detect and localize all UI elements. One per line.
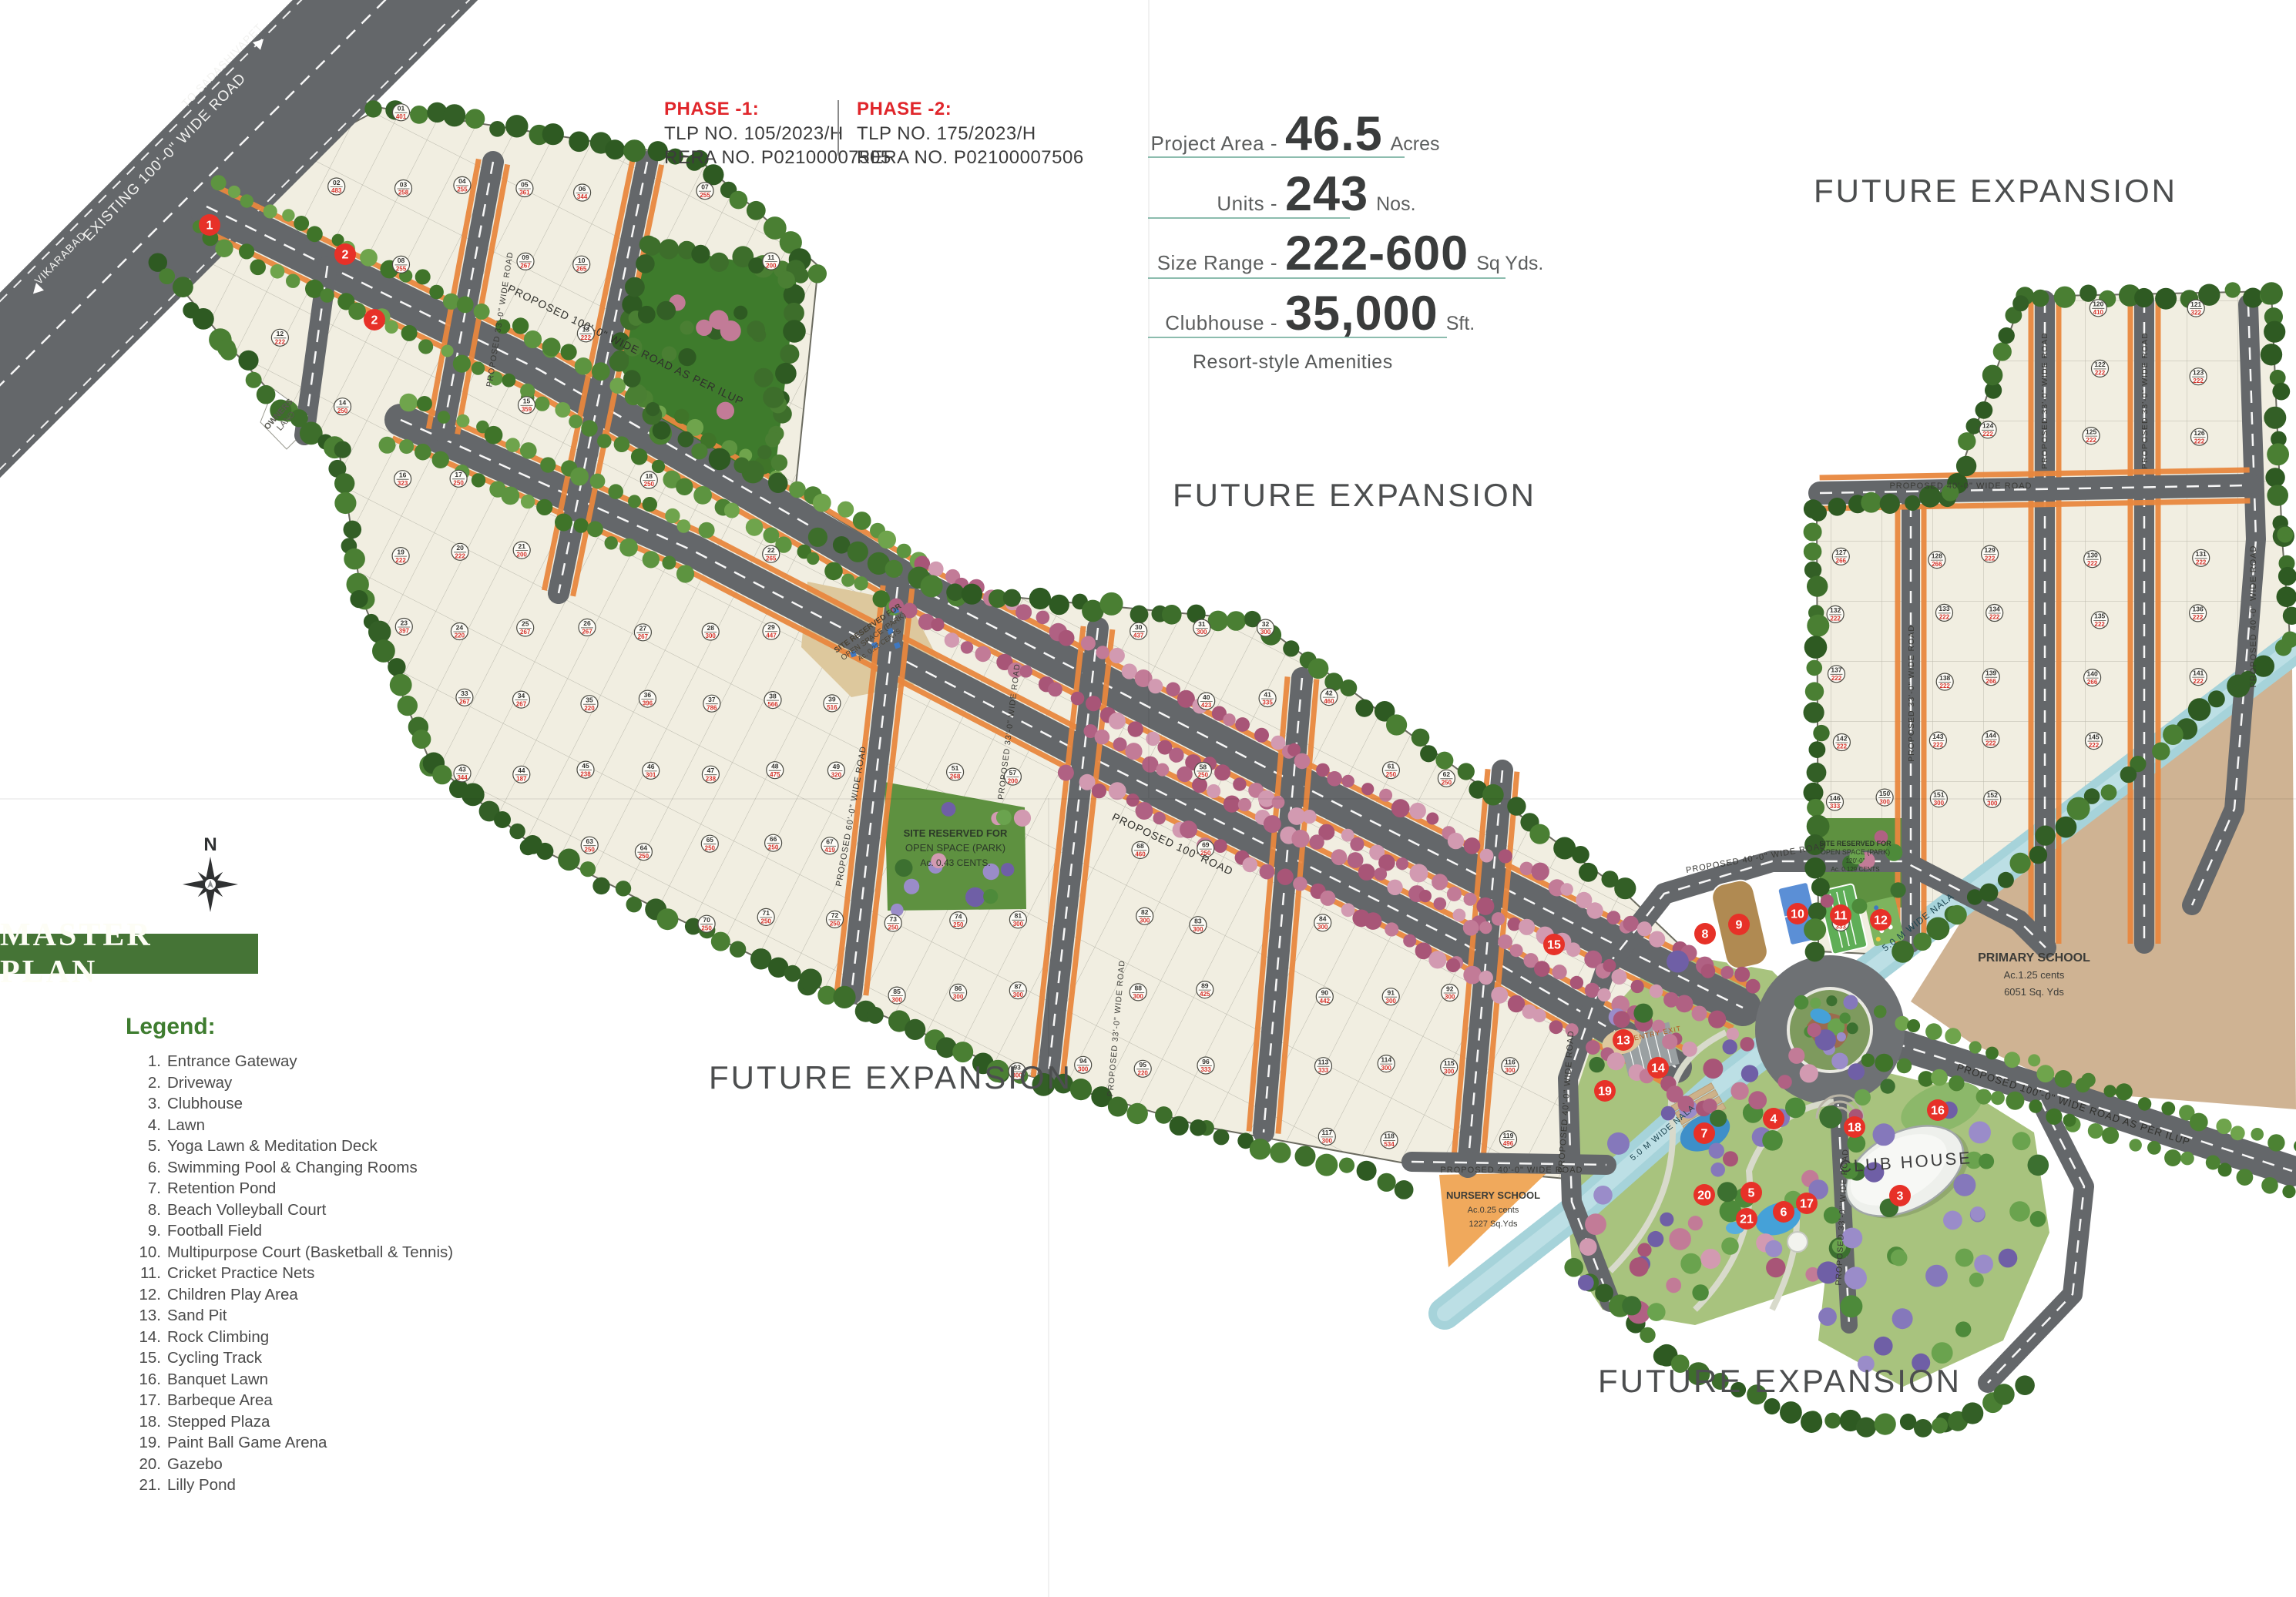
plot-label: 68460: [1132, 841, 1149, 858]
plot-label: 113333: [1315, 1058, 1332, 1075]
svg-text:222: 222: [1830, 616, 1841, 622]
svg-text:13: 13: [1616, 1035, 1630, 1048]
svg-text:1: 1: [206, 220, 213, 233]
svg-text:150: 150: [1879, 790, 1890, 797]
svg-text:437: 437: [1133, 632, 1144, 639]
plot-label: 17250: [450, 470, 467, 487]
svg-text:129: 129: [1985, 546, 1996, 554]
plot-label: 62250: [1438, 770, 1455, 787]
plot-label: 36396: [639, 690, 656, 707]
future-expansion-label: FUTURE EXPANSION: [1814, 173, 2177, 209]
plot-label: 71250: [757, 908, 774, 925]
legend-heading: Legend:: [126, 1014, 453, 1040]
plot-label: 123222: [2190, 368, 2207, 385]
svg-text:04: 04: [458, 177, 466, 185]
svg-text:396: 396: [643, 700, 653, 706]
plot-label: 119496: [1500, 1131, 1517, 1148]
svg-text:136: 136: [2193, 606, 2204, 613]
svg-text:300: 300: [1013, 921, 1024, 928]
svg-text:96: 96: [1202, 1058, 1210, 1065]
svg-text:268: 268: [950, 773, 961, 780]
svg-text:45: 45: [582, 762, 589, 770]
svg-text:71: 71: [762, 909, 770, 917]
svg-text:322: 322: [2191, 309, 2202, 316]
svg-text:120: 120: [2093, 300, 2103, 308]
svg-text:265: 265: [766, 555, 777, 562]
svg-text:20: 20: [1697, 1189, 1711, 1203]
map-marker-18: 18: [1844, 1116, 1865, 1138]
svg-text:57: 57: [1009, 769, 1017, 777]
plot-label: 27267: [634, 624, 651, 641]
svg-text:250: 250: [701, 924, 712, 931]
svg-text:89: 89: [1201, 981, 1209, 989]
plot-label: 05361: [516, 180, 533, 197]
map-marker-11: 11: [1830, 904, 1851, 926]
plot-label: 86300: [950, 984, 967, 1001]
svg-text:255: 255: [396, 266, 407, 273]
legend-item-5: 5.Yoga Lawn & Meditation Deck: [126, 1136, 453, 1157]
svg-text:300: 300: [1133, 993, 1144, 1000]
svg-text:187: 187: [516, 776, 527, 783]
svg-text:222: 222: [2193, 614, 2204, 621]
svg-text:300: 300: [1505, 1067, 1516, 1074]
map-marker-8: 8: [1694, 923, 1716, 944]
svg-text:85: 85: [893, 988, 901, 995]
svg-text:117: 117: [1321, 1129, 1332, 1136]
svg-text:SITE RESERVED FOR: SITE RESERVED FOR: [904, 827, 1008, 839]
stat-unit: Sft.: [1446, 313, 1475, 335]
svg-text:124: 124: [1982, 422, 1993, 430]
phase-2-rera: RERA NO. P02100007506: [857, 146, 1084, 170]
legend-item-6: 6.Swimming Pool & Changing Rooms: [126, 1157, 453, 1179]
svg-text:122: 122: [2094, 361, 2105, 368]
svg-text:141: 141: [2193, 669, 2204, 676]
svg-text:135: 135: [2094, 612, 2105, 620]
svg-text:534: 534: [1384, 1141, 1395, 1148]
plot-label: 32300: [1257, 619, 1274, 636]
svg-text:786: 786: [707, 704, 717, 711]
plot-label: 116300: [1502, 1058, 1519, 1075]
svg-text:21: 21: [518, 542, 525, 550]
master-plan-banner: MASTER PLAN: [0, 934, 258, 974]
plot-label: 72250: [827, 911, 844, 928]
plot-label: 03258: [395, 180, 412, 197]
legend-item-18: 18.Stepped Plaza: [126, 1411, 453, 1433]
svg-text:222: 222: [2087, 560, 2098, 567]
svg-text:84: 84: [1319, 915, 1327, 923]
plot-label: 117300: [1318, 1128, 1335, 1145]
svg-text:87: 87: [1015, 983, 1022, 991]
svg-text:74: 74: [955, 912, 962, 920]
plot-label: 143222: [1929, 732, 1946, 749]
svg-text:410: 410: [2093, 309, 2104, 316]
plot-label: 82300: [1136, 908, 1153, 924]
svg-text:397: 397: [399, 628, 410, 635]
svg-text:95: 95: [1139, 1061, 1146, 1069]
plot-label: 139266: [1982, 669, 1999, 686]
plot-label: 134222: [1986, 605, 2003, 622]
svg-text:250: 250: [585, 846, 596, 853]
svg-text:300: 300: [1078, 1066, 1089, 1073]
plot-label: 95220: [1134, 1060, 1151, 1077]
svg-text:222: 222: [1982, 431, 1993, 438]
plot-label: 38566: [764, 692, 781, 709]
stat-value: 222-600: [1285, 226, 1469, 281]
svg-text:03: 03: [400, 180, 408, 188]
svg-text:140: 140: [2087, 669, 2098, 677]
svg-text:333: 333: [1318, 1067, 1329, 1074]
svg-text:267: 267: [516, 700, 527, 707]
svg-text:125: 125: [2086, 428, 2096, 435]
svg-text:68: 68: [1136, 842, 1144, 850]
svg-text:08: 08: [398, 257, 405, 264]
legend-item-21: 21.Lilly Pond: [126, 1475, 453, 1496]
plot-label: 34267: [513, 691, 530, 708]
svg-text:49: 49: [833, 763, 841, 770]
plot-label: 35220: [581, 696, 598, 713]
svg-text:250: 250: [830, 921, 841, 928]
svg-text:250: 250: [337, 408, 348, 414]
svg-text:88: 88: [1134, 985, 1142, 992]
svg-text:300: 300: [1987, 800, 1998, 807]
svg-text:14: 14: [339, 399, 347, 407]
plot-label: 25267: [517, 619, 534, 636]
svg-text:222: 222: [395, 557, 406, 564]
plot-label: 06344: [574, 184, 591, 201]
svg-text:267: 267: [459, 699, 470, 706]
svg-text:300: 300: [1197, 629, 1207, 636]
svg-text:222: 222: [1831, 675, 1842, 682]
legend-list: 1.Entrance Gateway2.Driveway3.Clubhouse4…: [126, 1051, 453, 1496]
svg-text:40: 40: [1203, 693, 1210, 701]
svg-text:114: 114: [1381, 1055, 1391, 1063]
pool-deck: [1787, 1232, 1808, 1252]
plot-label: 73250: [884, 914, 901, 931]
svg-text:267: 267: [638, 633, 649, 640]
map-marker-4: 4: [1763, 1108, 1784, 1129]
svg-text:116: 116: [1505, 1059, 1516, 1066]
svg-text:6051 Sq. Yds: 6051 Sq. Yds: [2004, 986, 2064, 998]
svg-text:16: 16: [399, 471, 407, 479]
plot-label: 14250: [334, 398, 351, 415]
legend-item-3: 3.Clubhouse: [126, 1093, 453, 1115]
map-marker-2: 2: [334, 243, 356, 265]
plot-label: 90442: [1316, 988, 1333, 1005]
map-marker-7: 7: [1693, 1122, 1715, 1144]
svg-text:222: 222: [581, 334, 592, 341]
plot-label: 12222: [271, 329, 288, 346]
legend-item-14: 14.Rock Climbing: [126, 1327, 453, 1348]
legend-item-15: 15.Cycling Track: [126, 1347, 453, 1369]
svg-text:238: 238: [580, 770, 591, 777]
svg-text:66: 66: [770, 835, 777, 843]
plot-label: 04255: [454, 176, 471, 193]
svg-text:300: 300: [1444, 1068, 1455, 1075]
plot-label: 140266: [2084, 669, 2101, 686]
stat-separator: [1148, 277, 1505, 279]
svg-text:320: 320: [831, 771, 842, 778]
plot-label: 30437: [1130, 622, 1147, 639]
svg-text:8: 8: [1702, 928, 1709, 941]
plot-label: 74250: [950, 912, 967, 929]
svg-text:265: 265: [576, 265, 587, 272]
stat-row-2: Size Range -222-600Sq Yds.: [1133, 226, 1543, 281]
master-plan-title: MASTER PLAN: [0, 917, 258, 991]
svg-text:134: 134: [1989, 605, 2000, 612]
svg-text:10: 10: [1791, 908, 1804, 921]
svg-text:255: 255: [700, 192, 710, 199]
svg-text:64: 64: [640, 844, 648, 852]
legend-item-19: 19.Paint Ball Game Arena: [126, 1432, 453, 1454]
svg-text:115: 115: [1444, 1059, 1455, 1067]
svg-text:2: 2: [342, 249, 349, 262]
svg-text:81: 81: [1015, 912, 1022, 920]
stat-separator: [1148, 217, 1350, 219]
plot-label: 64250: [635, 844, 652, 861]
plot-label: 33267: [456, 689, 473, 706]
legend-item-17: 17.Barbeque Area: [126, 1390, 453, 1411]
svg-text:460: 460: [1135, 851, 1146, 858]
svg-text:12: 12: [277, 330, 284, 337]
svg-text:121: 121: [2190, 300, 2201, 308]
svg-text:301: 301: [646, 772, 656, 779]
plot-label: 122222: [2092, 360, 2109, 377]
legend-item-2: 2.Driveway: [126, 1072, 453, 1094]
plot-label: 42460: [1321, 689, 1338, 706]
plot-label: 51268: [947, 763, 964, 780]
svg-text:267: 267: [582, 629, 592, 636]
plot-label: 145222: [2086, 733, 2103, 750]
svg-text:300: 300: [1386, 998, 1397, 1005]
plot-label: 44187: [513, 766, 530, 783]
svg-text:67: 67: [826, 838, 834, 846]
plot-label: 10265: [573, 256, 590, 273]
svg-text:250: 250: [1442, 780, 1452, 787]
svg-text:09: 09: [522, 253, 529, 261]
svg-text:47: 47: [707, 767, 715, 774]
svg-text:300: 300: [1260, 629, 1271, 636]
svg-text:113: 113: [1318, 1059, 1329, 1066]
svg-text:07: 07: [701, 183, 709, 191]
svg-text:02: 02: [333, 179, 341, 186]
plot-label: 83300: [1190, 917, 1207, 934]
svg-text:33: 33: [461, 689, 468, 697]
phase-2-heading: PHASE -2:: [857, 97, 1084, 122]
svg-text:483: 483: [331, 187, 342, 194]
compass-icon: N: [183, 834, 238, 912]
road-label: PROPOSED 33'-0" WIDE ROAD: [2040, 332, 2049, 469]
svg-text:222: 222: [1989, 614, 2000, 621]
svg-text:344: 344: [457, 774, 468, 781]
legend-item-10: 10.Multipurpose Court (Basketball & Tenn…: [126, 1242, 453, 1263]
plot-label: 46301: [643, 762, 660, 779]
plot-label: 81300: [1009, 911, 1026, 928]
svg-text:94: 94: [1079, 1057, 1087, 1065]
svg-text:18: 18: [1848, 1122, 1861, 1135]
svg-text:62: 62: [1443, 770, 1451, 778]
plot-label: 37786: [703, 695, 720, 712]
plot-label: 132222: [1827, 606, 1844, 622]
svg-text:222: 222: [2095, 370, 2106, 377]
svg-text:516: 516: [827, 704, 838, 711]
plot-label: 67419: [821, 837, 838, 854]
svg-text:300: 300: [1013, 991, 1024, 998]
road-label: PROPOSED 33'-0" WIDE ROAD: [2140, 332, 2150, 469]
legend-item-1: 1.Entrance Gateway: [126, 1051, 453, 1072]
map-marker-1: 1: [199, 214, 220, 236]
svg-text:25: 25: [522, 620, 529, 628]
plot-label: 22265: [763, 545, 780, 562]
svg-text:142: 142: [1836, 734, 1847, 742]
svg-text:300: 300: [891, 996, 902, 1003]
plot-label: 85300: [888, 987, 905, 1004]
legend-item-8: 8.Beach Volleyball Court: [126, 1199, 453, 1221]
stat-value: 46.5: [1285, 106, 1383, 162]
legend-item-20: 20.Gazebo: [126, 1454, 453, 1475]
map-marker-17: 17: [1796, 1193, 1818, 1214]
svg-text:359: 359: [522, 406, 532, 413]
svg-text:200: 200: [517, 551, 528, 558]
plot-label: 89425: [1197, 981, 1213, 998]
svg-text:128: 128: [1932, 552, 1942, 559]
plot-label: 19222: [392, 548, 409, 565]
plot-label: 49320: [827, 762, 844, 779]
plot-label: 135222: [2091, 612, 2108, 629]
legend-item-11: 11.Cricket Practice Nets: [126, 1263, 453, 1284]
legend-item-4: 4.Lawn: [126, 1115, 453, 1136]
svg-text:41: 41: [1264, 690, 1271, 698]
legend-item-9: 9.Football Field: [126, 1220, 453, 1242]
svg-text:222: 222: [1939, 614, 1950, 621]
svg-text:222: 222: [2193, 377, 2204, 384]
map-marker-3: 3: [1889, 1185, 1911, 1206]
svg-text:29: 29: [767, 623, 775, 631]
svg-text:220: 220: [455, 632, 465, 639]
svg-text:36: 36: [644, 691, 652, 699]
svg-text:423: 423: [1201, 702, 1212, 709]
map-marker-16: 16: [1927, 1099, 1949, 1121]
map-marker-2: 2: [364, 309, 385, 330]
svg-text:344: 344: [577, 193, 588, 200]
svg-text:69: 69: [1202, 840, 1210, 848]
svg-text:37: 37: [708, 696, 716, 703]
svg-text:20: 20: [456, 544, 464, 552]
svg-text:14: 14: [1651, 1062, 1665, 1075]
legend-item-16: 16.Banquet Lawn: [126, 1369, 453, 1391]
road-label: PROPOSED 33'-0" WIDE ROAD: [1907, 625, 1916, 762]
svg-text:5: 5: [1748, 1187, 1755, 1200]
page-seam-vertical-bottom: [1048, 798, 1049, 1597]
svg-text:139: 139: [1986, 669, 1996, 677]
svg-text:222: 222: [1940, 683, 1951, 689]
plot-label: 65250: [701, 835, 718, 852]
svg-text:51: 51: [952, 764, 959, 772]
svg-text:475: 475: [770, 771, 780, 778]
svg-text:46: 46: [647, 763, 655, 770]
stat-label: Clubhouse -: [1133, 311, 1277, 335]
svg-text:222: 222: [1933, 741, 1944, 748]
plot-label: 07255: [697, 183, 713, 200]
svg-text:220: 220: [1138, 1070, 1149, 1077]
svg-text:123: 123: [2193, 369, 2204, 377]
svg-text:266: 266: [1932, 561, 1942, 568]
svg-text:3: 3: [1897, 1190, 1904, 1203]
svg-text:Ac. 0.43 CENTS.: Ac. 0.43 CENTS.: [920, 857, 990, 868]
svg-text:132: 132: [1830, 606, 1841, 614]
plot-label: 126222: [2191, 428, 2208, 445]
future-expansion-label: FUTURE EXPANSION: [709, 1059, 1072, 1095]
svg-text:11: 11: [767, 253, 774, 261]
svg-text:11: 11: [1834, 910, 1848, 923]
map-marker-6: 6: [1773, 1201, 1794, 1223]
plot-label: 136222: [2190, 605, 2207, 622]
plot-label: 66250: [765, 834, 782, 851]
svg-text:323: 323: [398, 480, 408, 487]
legend-item-7: 7.Retention Pond: [126, 1178, 453, 1199]
plot-label: 02483: [328, 178, 345, 195]
svg-text:06: 06: [579, 185, 586, 193]
svg-text:19: 19: [397, 548, 404, 555]
plot-label: 133222: [1936, 604, 1953, 621]
svg-text:144: 144: [1986, 731, 1996, 739]
svg-text:300: 300: [1445, 994, 1455, 1001]
plot-label: 21200: [513, 542, 530, 559]
phase-2-block: PHASE -2: TLP NO. 175/2023/H RERA NO. P0…: [857, 97, 1084, 170]
svg-text:43: 43: [458, 766, 466, 773]
svg-text:42: 42: [1325, 689, 1333, 696]
svg-text:200: 200: [766, 262, 777, 269]
svg-text:18: 18: [646, 472, 653, 480]
plot-label: 84300: [1314, 914, 1331, 931]
plot-label: 96333: [1197, 1057, 1214, 1074]
plot-label: 11200: [763, 253, 780, 270]
svg-text:250: 250: [705, 844, 716, 851]
svg-text:7: 7: [1701, 1128, 1708, 1141]
svg-text:222: 222: [2196, 559, 2207, 566]
stats-footnote: Resort-style Amenities: [1193, 351, 1393, 374]
svg-text:48: 48: [771, 763, 779, 770]
svg-text:255: 255: [457, 186, 468, 193]
svg-text:63: 63: [586, 837, 593, 845]
svg-text:133: 133: [1939, 605, 1949, 612]
plot-label: 01401: [393, 104, 410, 121]
svg-text:419: 419: [824, 847, 835, 854]
svg-text:12: 12: [1874, 914, 1888, 928]
svg-text:9: 9: [1736, 919, 1743, 932]
svg-text:250: 250: [768, 844, 779, 851]
svg-text:61: 61: [1388, 763, 1395, 770]
plot-label: 118534: [1381, 1132, 1398, 1149]
plot-label: 146333: [1827, 793, 1844, 810]
svg-text:266: 266: [1836, 558, 1847, 565]
stat-label: Units -: [1133, 192, 1277, 216]
svg-text:258: 258: [398, 190, 409, 196]
svg-text:65: 65: [707, 836, 714, 844]
map-marker-5: 5: [1740, 1182, 1762, 1203]
svg-text:300: 300: [1381, 1065, 1392, 1072]
legend-item-12: 12.Children Play Area: [126, 1284, 453, 1306]
stat-label: Size Range -: [1133, 251, 1277, 275]
svg-text:38: 38: [769, 692, 777, 700]
plot-label: 09267: [517, 253, 534, 270]
svg-text:266: 266: [1986, 678, 1997, 685]
svg-text:222: 222: [2089, 742, 2100, 749]
road-label: PROPOSED 40'-0" WIDE ROAD: [2249, 545, 2258, 687]
svg-text:222: 222: [1985, 555, 1996, 562]
svg-text:266: 266: [2087, 679, 2098, 686]
map-marker-15: 15: [1543, 934, 1565, 955]
svg-text:496: 496: [1503, 1140, 1514, 1147]
